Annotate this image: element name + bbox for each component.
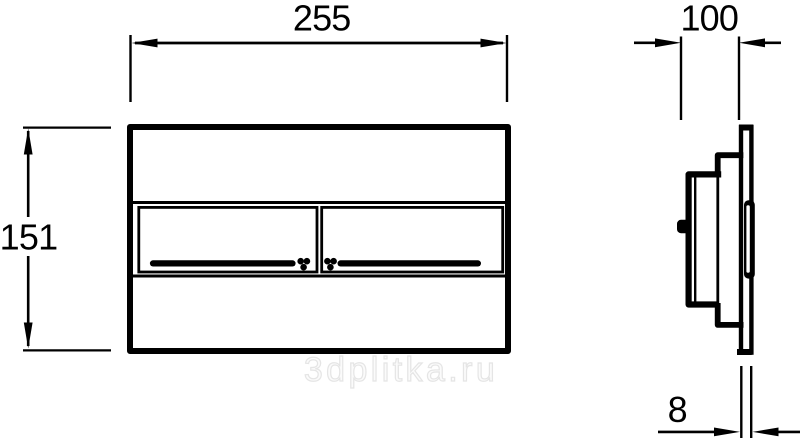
svg-text:8: 8 [668,389,688,430]
svg-text:151: 151 [0,217,57,258]
svg-text:255: 255 [293,0,351,39]
svg-text:3dplitka.ru: 3dplitka.ru [304,351,498,389]
svg-text:100: 100 [680,0,738,39]
